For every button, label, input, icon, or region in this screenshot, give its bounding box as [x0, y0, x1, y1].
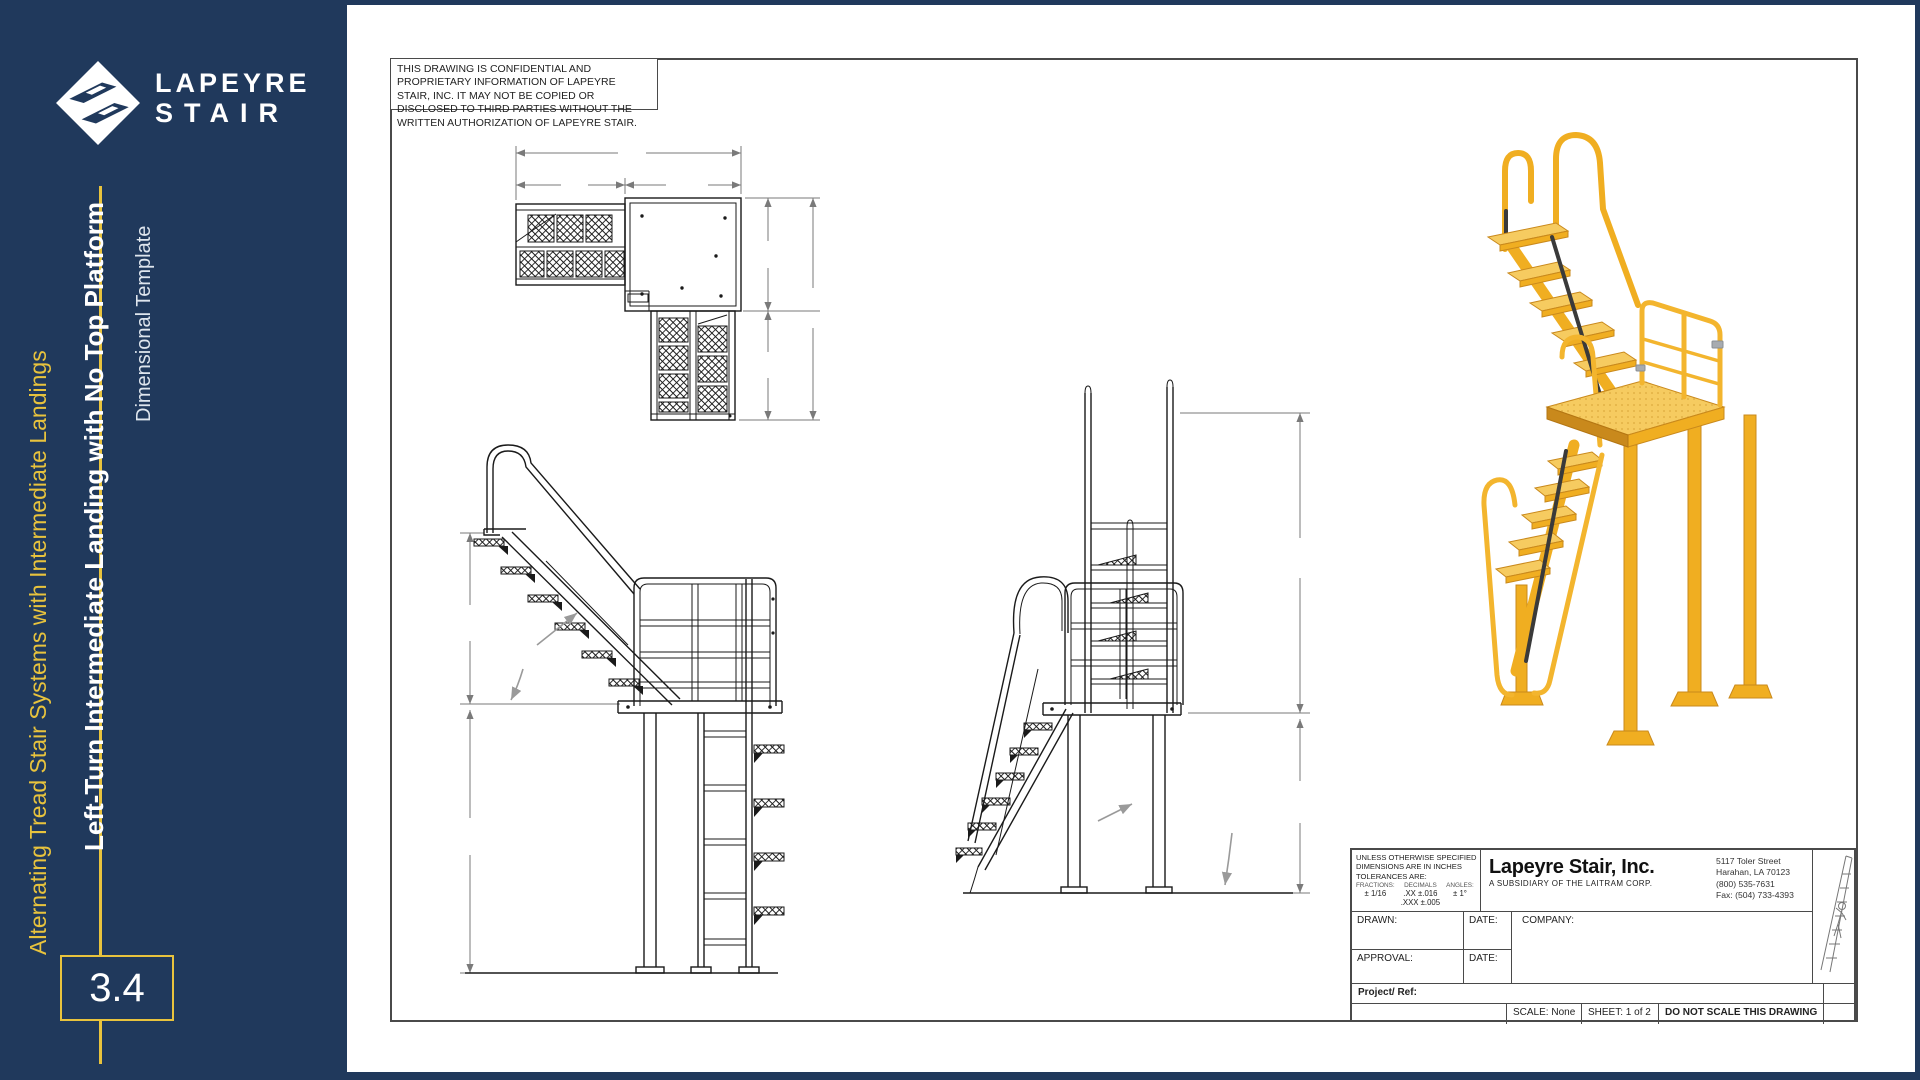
decimals-value-xxx: .XXX ±.005: [1401, 898, 1440, 908]
angles-label: ANGLES:: [1446, 882, 1474, 889]
decimals-label: DECIMALS: [1401, 882, 1440, 889]
approval-label: APPROVAL:: [1357, 953, 1413, 964]
plan-landing-platform: [625, 198, 741, 311]
mini-stair-figure-icon: [1813, 850, 1856, 982]
project-ref-cell: Project/ Ref:: [1352, 984, 1824, 1004]
do-not-scale-cell: DO NOT SCALE THIS DRAWING: [1659, 1004, 1824, 1024]
render-upper-right-handrail: [1556, 135, 1638, 305]
tolerances-cell: UNLESS OTHERWISE SPECIFIED DIMENSIONS AR…: [1352, 850, 1481, 912]
fractions-label: FRACTIONS:: [1356, 882, 1395, 889]
date2-cell: DATE:: [1464, 950, 1512, 984]
date1-cell: DATE:: [1464, 912, 1512, 950]
project-ref-label: Project/ Ref:: [1358, 987, 1417, 998]
logo-word-stair: STAIR: [155, 98, 311, 128]
elevation2-lower-flight: [956, 577, 1073, 893]
fractions-value: ± 1/16: [1356, 889, 1395, 899]
stair-figure-cell: [1812, 850, 1855, 984]
elevation1-upper-flight: [474, 445, 680, 705]
company-address: 5117 Toler Street Harahan, LA 70123 (800…: [1716, 856, 1808, 911]
company-cell: Lapeyre Stair, Inc. A SUBSIDIARY OF THE …: [1481, 850, 1812, 912]
lapeyre-diamond-logo-icon: [55, 60, 141, 146]
address-line: Fax: (504) 733-4393: [1716, 890, 1808, 901]
scale-label: SCALE: None: [1513, 1007, 1575, 1018]
drawn-cell: DRAWN:: [1352, 912, 1464, 950]
company-label: COMPANY:: [1522, 915, 1574, 926]
plan-upper-stair: [516, 204, 625, 285]
address-line: (800) 535-7631: [1716, 879, 1808, 890]
page-title-vertical: Left-Turn Intermediate Landing with No T…: [78, 202, 111, 851]
scale-cell: SCALE: None: [1507, 1004, 1582, 1024]
elevation-view-lower-flight: [948, 373, 1338, 993]
customer-company-cell: COMPANY:: [1512, 912, 1812, 984]
company-name: Lapeyre Stair, Inc.: [1489, 856, 1716, 878]
tol-header-2: DIMENSIONS ARE IN INCHES: [1356, 862, 1462, 871]
decimals-value-xx: .XX ±.016: [1401, 889, 1440, 899]
title-block: UNLESS OTHERWISE SPECIFIED DIMENSIONS AR…: [1350, 848, 1856, 1022]
company-subtitle: A SUBSIDIARY OF THE LAITRAM CORP.: [1489, 879, 1716, 888]
date-label: DATE:: [1469, 953, 1498, 964]
page-subtitle-vertical: Dimensional Template: [131, 226, 157, 422]
drawn-label: DRAWN:: [1357, 915, 1397, 926]
date-label: DATE:: [1469, 915, 1498, 926]
tol-header-3: TOLERANCES ARE:: [1356, 872, 1427, 881]
address-line: Harahan, LA 70123: [1716, 867, 1808, 878]
do-not-scale-warning: DO NOT SCALE THIS DRAWING: [1665, 1007, 1817, 1018]
series-title-vertical: Alternating Tread Stair Systems with Int…: [23, 350, 53, 955]
angles-value: ± 1°: [1446, 889, 1474, 899]
isometric-render: [1452, 115, 1802, 815]
address-line: 5117 Toler Street: [1716, 856, 1808, 867]
gold-divider-rule-lower: [99, 1019, 102, 1064]
page-number-badge: 3.4: [60, 955, 174, 1021]
logo-word-lapeyre: LAPEYRE: [155, 68, 311, 98]
approval-cell: APPROVAL:: [1352, 950, 1464, 984]
tol-header-1: UNLESS OTHERWISE SPECIFIED: [1356, 853, 1477, 862]
render-lower-left-handrail: [1484, 480, 1515, 695]
elevation2-dimension-lines: [1180, 413, 1310, 893]
page-root: LAPEYRE STAIR Alternating Tread Stair Sy…: [0, 0, 1920, 1080]
project-ref-spacer: [1824, 984, 1858, 1004]
elevation-view-upper-flight: [440, 383, 790, 983]
sheet-cell: SHEET: 1 of 2: [1582, 1004, 1659, 1024]
logo-wordmark: LAPEYRE STAIR: [155, 68, 311, 128]
lapeyre-stair-logo: LAPEYRE STAIR: [55, 60, 295, 146]
scale-row-spacer: [1352, 1004, 1507, 1024]
elevation2-upper-flight-edge: [1085, 380, 1173, 713]
confidentiality-note: THIS DRAWING IS CONFIDENTIAL AND PROPRIE…: [390, 58, 658, 110]
elevation2-platform-guardrail: [1043, 583, 1183, 893]
sheet-label: SHEET: 1 of 2: [1588, 1007, 1651, 1018]
